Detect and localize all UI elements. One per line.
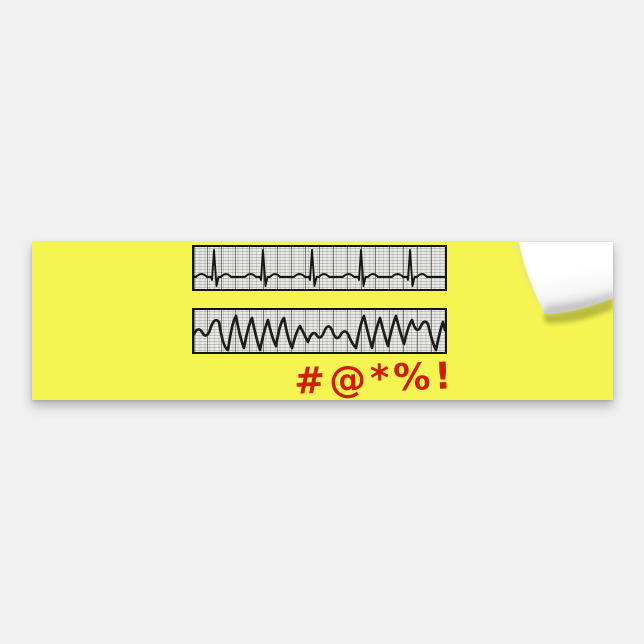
ecg-normal-trace-canvas bbox=[194, 247, 445, 289]
ecg-strip-normal-rhythm bbox=[192, 245, 447, 291]
normal-sinus-rhythm-trace bbox=[194, 250, 445, 286]
ecg-strip-fibrillation bbox=[192, 308, 447, 354]
expletive-caption-text: #@*%! bbox=[293, 357, 456, 400]
ecg-vfib-trace-canvas bbox=[194, 310, 445, 352]
bumper-sticker[interactable]: #@*%! bbox=[32, 242, 613, 400]
ventricular-fibrillation-trace bbox=[194, 316, 445, 350]
product-image-background: #@*%! bbox=[0, 0, 644, 644]
peeled-corner bbox=[503, 242, 613, 327]
